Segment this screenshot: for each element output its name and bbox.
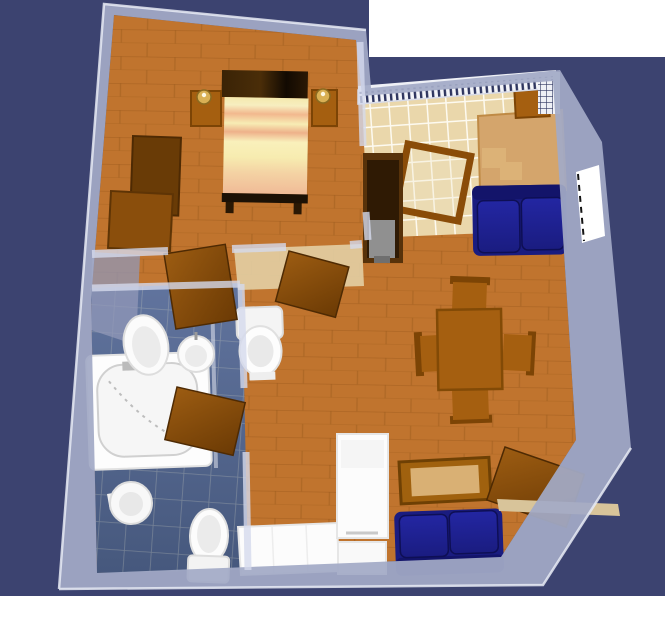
tv-cabinet[interactable] bbox=[363, 153, 403, 263]
lamp-bulb bbox=[321, 92, 325, 96]
dining-chair-bottom[interactable] bbox=[449, 387, 492, 424]
kitchen-chair-seat[interactable] bbox=[500, 162, 522, 180]
bed-foot-rail bbox=[222, 193, 308, 203]
tv-icon bbox=[369, 220, 395, 258]
bed-headboard bbox=[222, 70, 308, 98]
glass-door[interactable] bbox=[395, 144, 470, 221]
nightstand-left[interactable] bbox=[191, 90, 221, 126]
nightstand-right[interactable] bbox=[312, 89, 337, 126]
floor-plan-render bbox=[0, 0, 665, 621]
floor-plan-stage bbox=[0, 0, 665, 621]
interior-wall-bathroom-top bbox=[92, 284, 240, 288]
tv-stand bbox=[374, 256, 390, 263]
loveseat-blue[interactable] bbox=[472, 184, 567, 256]
refrigerator[interactable] bbox=[337, 434, 388, 574]
double-bed[interactable] bbox=[220, 70, 310, 215]
dining-table[interactable] bbox=[437, 309, 502, 390]
bed-mattress bbox=[223, 97, 309, 194]
wardrobe-low[interactable] bbox=[108, 191, 173, 251]
coffee-table[interactable] bbox=[399, 457, 491, 504]
lamp-bulb bbox=[202, 93, 206, 97]
dining-chair-right[interactable] bbox=[502, 330, 536, 376]
